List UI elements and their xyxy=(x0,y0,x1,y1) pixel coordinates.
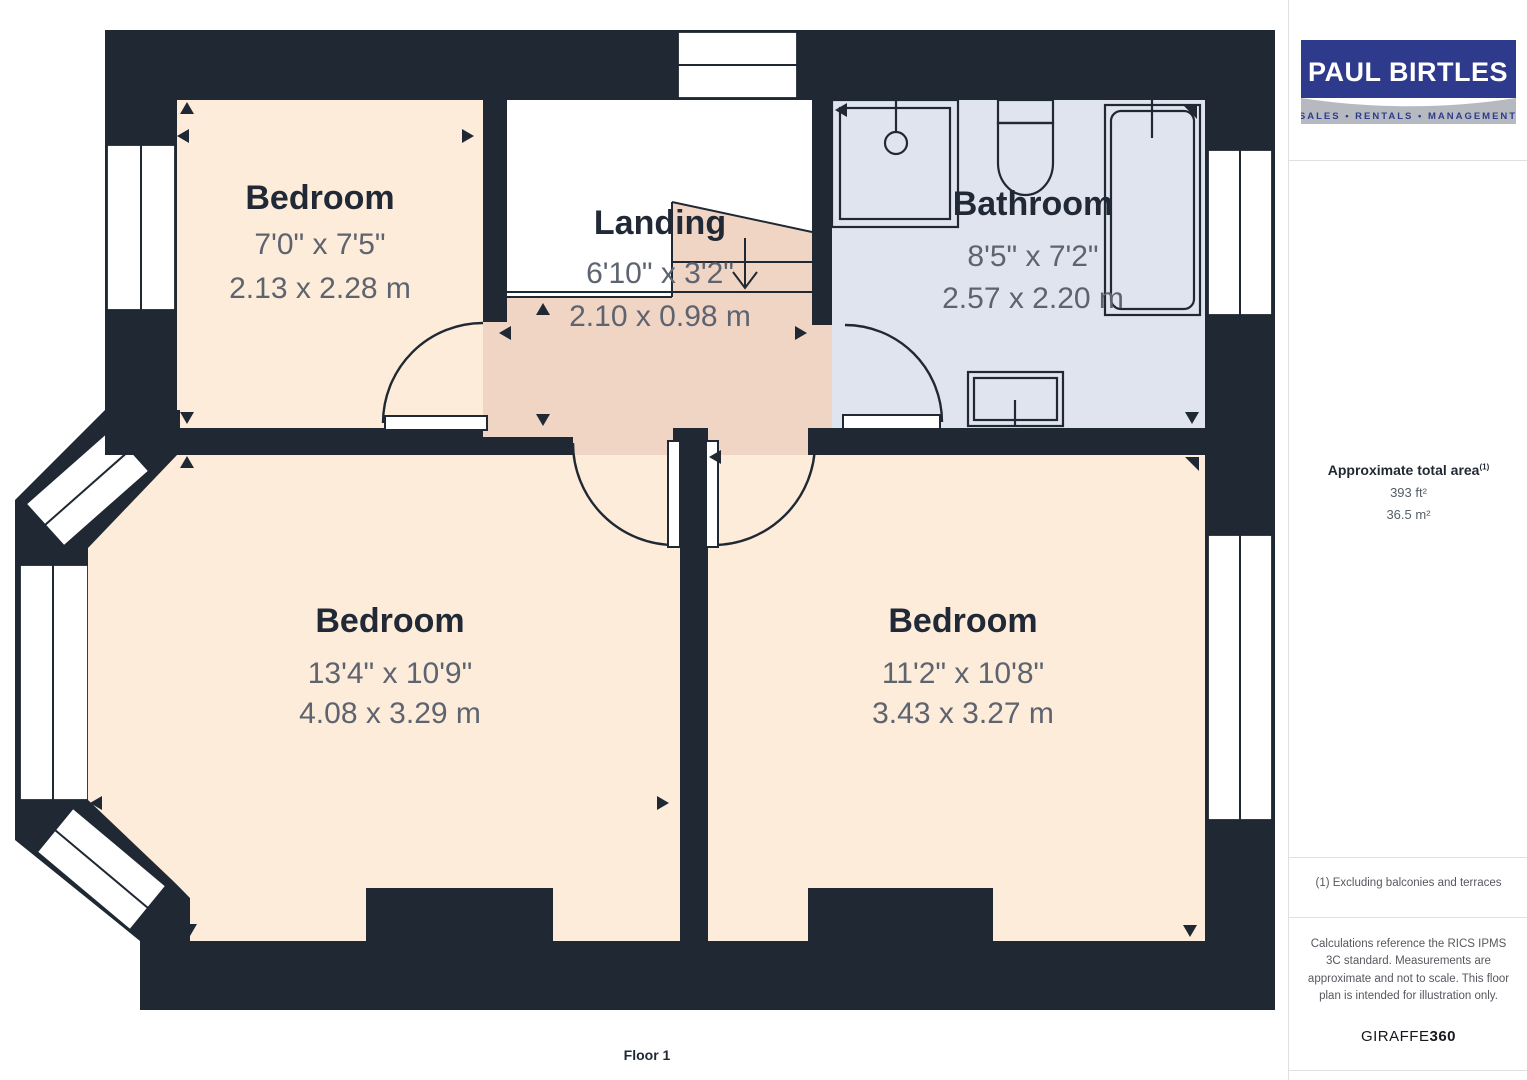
giraffe360-brand: GIRAFFE360 xyxy=(1289,1028,1527,1045)
window-top-landing xyxy=(678,32,797,98)
floorplan-page: Bedroom 7'0" x 7'5" 2.13 x 2.28 m Landin… xyxy=(0,0,1527,1080)
logo-tagline: SALES • RENTALS • MANAGEMENT xyxy=(1301,111,1516,122)
sidebar-divider xyxy=(1289,160,1527,161)
bay-window-middle xyxy=(20,565,88,800)
chimney-breast-left xyxy=(366,888,553,941)
sidebar-divider xyxy=(1289,917,1527,918)
bedroom-bottom-left-label: Bedroom 13'4" x 10'9" 4.08 x 3.29 m xyxy=(299,602,481,730)
chimney-breast-right xyxy=(808,888,993,941)
window-bedroom-right xyxy=(1208,535,1272,820)
bedroom-top-left-label: Bedroom 7'0" x 7'5" 2.13 x 2.28 m xyxy=(229,179,411,305)
window-left xyxy=(107,145,175,310)
sidebar-divider xyxy=(1289,857,1527,858)
room-name: Bedroom xyxy=(315,602,464,640)
room-name: Landing xyxy=(594,204,726,242)
room-dim-metric: 2.10 x 0.98 m xyxy=(569,300,751,333)
total-area-footnote-ref: (1) xyxy=(1479,462,1489,471)
landing-label: Landing 6'10" x 3'2" 2.10 x 0.98 m xyxy=(569,204,751,333)
logo-title: PAUL BIRTLES xyxy=(1308,57,1508,87)
total-area-imperial: 393 ft² xyxy=(1289,485,1527,500)
room-dim-imperial: 8'5" x 7'2" xyxy=(967,240,1098,273)
total-area-title-text: Approximate total area xyxy=(1328,462,1480,478)
room-dim-metric: 2.57 x 2.20 m xyxy=(942,282,1124,315)
room-dim-metric: 3.43 x 3.27 m xyxy=(872,697,1054,730)
brand-suffix: 360 xyxy=(1429,1028,1456,1045)
total-area-metric: 36.5 m² xyxy=(1289,507,1527,522)
floor-label: Floor 1 xyxy=(624,1047,671,1063)
floorplan-drawing: Bedroom 7'0" x 7'5" 2.13 x 2.28 m Landin… xyxy=(0,0,1288,1080)
room-dim-imperial: 6'10" x 3'2" xyxy=(586,257,734,290)
room-dim-metric: 4.08 x 3.29 m xyxy=(299,697,481,730)
sidebar-divider xyxy=(1289,1070,1527,1071)
room-dim-imperial: 11'2" x 10'8" xyxy=(882,657,1044,690)
agency-logo: PAUL BIRTLES SALES • RENTALS • MANAGEMEN… xyxy=(1301,40,1516,126)
brand-name: GIRAFFE xyxy=(1361,1028,1430,1045)
room-name: Bedroom xyxy=(245,179,394,217)
room-dim-metric: 2.13 x 2.28 m xyxy=(229,272,411,305)
landing-doorway-left xyxy=(573,437,673,455)
disclaimer-text: Calculations reference the RICS IPMS 3C … xyxy=(1289,936,1527,1005)
window-bathroom-right xyxy=(1208,150,1272,315)
bedroom-bottom-right-label: Bedroom 11'2" x 10'8" 3.43 x 3.27 m xyxy=(872,602,1054,730)
room-dim-imperial: 7'0" x 7'5" xyxy=(254,228,385,261)
room-name: Bathroom xyxy=(953,185,1114,223)
info-sidebar: PAUL BIRTLES SALES • RENTALS • MANAGEMEN… xyxy=(1288,0,1527,1080)
room-name: Bedroom xyxy=(888,602,1037,640)
bathroom-label: Bathroom 8'5" x 7'2" 2.57 x 2.20 m xyxy=(942,185,1124,315)
total-area-title: Approximate total area(1) xyxy=(1289,462,1527,478)
area-footnote: (1) Excluding balconies and terraces xyxy=(1289,877,1527,889)
total-area-block: Approximate total area(1) 393 ft² 36.5 m… xyxy=(1289,462,1527,522)
room-dim-imperial: 13'4" x 10'9" xyxy=(308,657,473,690)
landing-doorway-right xyxy=(708,437,808,455)
bedroom-top-left-floor xyxy=(177,100,483,428)
